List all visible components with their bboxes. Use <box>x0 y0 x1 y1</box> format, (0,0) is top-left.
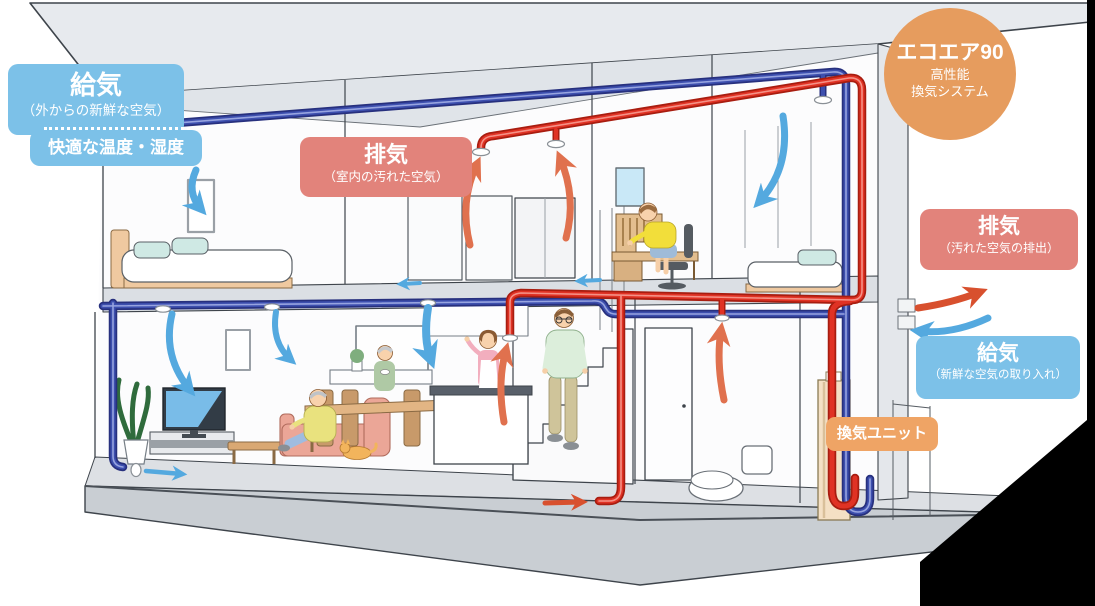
exhaust-indoor-label: 排気 （室内の汚れた空気） <box>300 137 472 197</box>
exhaust-indoor-subtitle: （室内の汚れた空気） <box>300 168 472 186</box>
supply-intake-title: 給気 <box>916 341 1080 367</box>
vent-living-2 <box>265 304 280 310</box>
grandmother-at-table <box>374 346 395 392</box>
arrow-floor-outlet <box>146 471 182 474</box>
supply-intake-subtitle: （新鮮な空気の取り入れ） <box>916 367 1080 384</box>
study-window <box>616 168 644 206</box>
arrow-exhaust-outside <box>918 292 980 308</box>
supply-air-subtitle: （外からの新鮮な空気） <box>8 101 184 120</box>
exterior-vent-cap-bottom <box>898 316 915 329</box>
exhaust-outlet-subtitle: （汚れた空気の排出） <box>920 240 1078 257</box>
supply-air-label: 給気 （外からの新鮮な空気） <box>8 64 184 135</box>
exhaust-indoor-title: 排気 <box>300 141 472 168</box>
exhaust-outlet-label: 排気 （汚れた空気の排出） <box>920 209 1078 270</box>
comfort-note-label: 快適な温度・湿度 <box>30 130 202 166</box>
dotted-separator <box>44 127 190 130</box>
kitchen-counter <box>430 386 532 464</box>
product-subtitle-2: 換気システム <box>884 83 1016 100</box>
vent-bedroom2 <box>815 96 832 103</box>
vent-toilet <box>715 315 729 321</box>
supply-air-title: 給気 <box>8 69 184 101</box>
exterior-vent-cap-top <box>898 299 915 312</box>
arrow-underfloor <box>545 502 582 503</box>
product-subtitle-1: 高性能 <box>884 66 1016 83</box>
arrow-2f-floor-b <box>579 280 600 281</box>
toilet-door <box>645 328 692 480</box>
hall-door-b <box>466 196 512 280</box>
hall-door-a <box>408 196 462 280</box>
vent-floor-outlet <box>131 464 141 477</box>
living-picture-frame <box>226 330 250 370</box>
arrow-2f-floor-a <box>401 283 420 284</box>
product-name: エコエア90 <box>884 40 1016 66</box>
vent-kitchen <box>503 335 518 341</box>
product-badge: エコエア90 高性能 換気システム <box>884 8 1016 140</box>
supply-intake-label: 給気 （新鮮な空気の取り入れ） <box>916 336 1080 399</box>
vent-unit-label: 換気ユニット <box>826 417 938 451</box>
vent-hall-1 <box>473 148 490 155</box>
arrow-intake-outside <box>918 318 988 332</box>
ventilation-system-diagram: 快適な温度・湿度 給気 （外からの新鮮な空気） 排気 （室内の汚れた空気） エコ… <box>0 0 1095 606</box>
tv <box>163 388 225 438</box>
vent-living-1 <box>156 306 171 312</box>
vent-hall-2 <box>548 140 565 147</box>
exhaust-outlet-title: 排気 <box>920 214 1078 240</box>
